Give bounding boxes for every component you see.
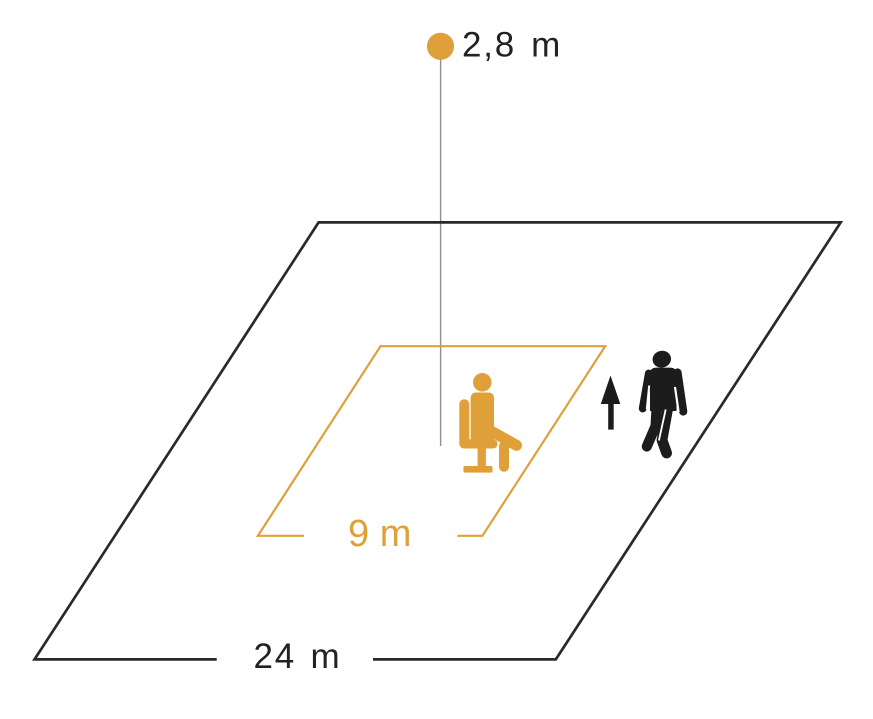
svg-text:2,8 m: 2,8 m [462, 25, 562, 64]
svg-text:9 m: 9 m [348, 513, 411, 555]
svg-text:24 m: 24 m [254, 637, 342, 676]
